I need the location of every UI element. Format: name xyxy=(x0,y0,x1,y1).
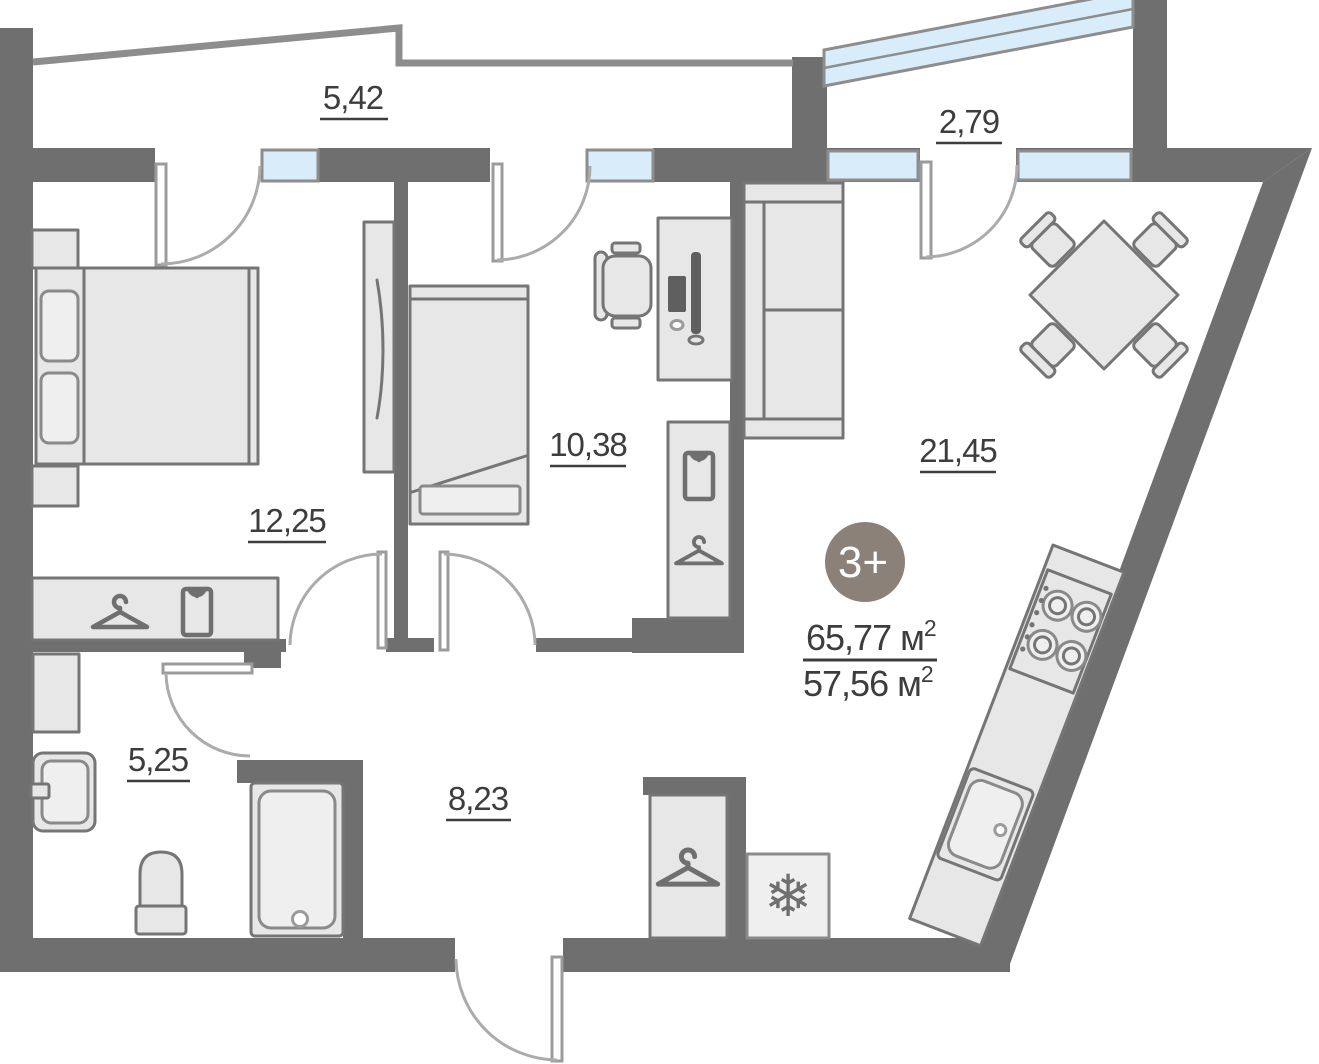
area-total-value: 65,77 xyxy=(806,617,891,658)
balcony-divider-column xyxy=(792,57,827,182)
hall-niche-top-wall xyxy=(643,777,746,795)
area-total: 65,77 м2 xyxy=(806,615,936,658)
wall-divider-foot xyxy=(386,638,434,652)
pillow-bottom xyxy=(41,373,78,443)
shower-tray-inner xyxy=(259,791,335,928)
shower xyxy=(251,783,343,936)
bedroom-tall-closet xyxy=(364,222,394,472)
toilet-tank xyxy=(136,906,186,934)
monitor xyxy=(691,252,701,334)
door-arc-bedroom xyxy=(290,554,382,645)
kidsroom-furniture xyxy=(410,218,732,618)
chair-armrest-bottom xyxy=(612,318,640,328)
sofa xyxy=(744,183,843,438)
door-leaf-entrance xyxy=(552,957,562,1061)
door-leaf-bathroom xyxy=(163,664,252,673)
rooms-badge-label: 3+ xyxy=(838,538,888,587)
basin-tap xyxy=(31,784,49,798)
label-bathroom: 5,25 xyxy=(128,741,188,778)
window-living-left xyxy=(828,151,918,180)
corridor-wall-block xyxy=(632,618,744,653)
bedroom-top-wall-c xyxy=(653,148,793,182)
bathroom-right-wall xyxy=(343,762,363,940)
glazing-band xyxy=(824,0,1133,86)
sofa-backrest xyxy=(744,202,764,419)
glazing-midline xyxy=(824,9,1133,68)
label-kidsroom: 10,38 xyxy=(549,426,627,463)
bedroom-wardrobe xyxy=(32,578,278,640)
sofa-armrest-bottom xyxy=(744,419,843,438)
window-living-right xyxy=(1018,151,1131,180)
door-arc-bedroom-balcony xyxy=(161,166,260,264)
door-arc-living-balcony xyxy=(926,165,1017,257)
door-leaf-kidsroom-balcony xyxy=(493,164,502,261)
area-total-unit: м xyxy=(891,617,924,658)
bathroom-furniture xyxy=(31,654,343,936)
door-arc-entrance xyxy=(456,959,557,1060)
outer-wall-bottom-right xyxy=(563,938,1010,972)
toilet xyxy=(136,852,186,934)
sofa-armrest-top xyxy=(744,183,843,202)
window-bedroom xyxy=(262,150,318,181)
label-bedroom: 12,25 xyxy=(248,502,326,539)
office-chair xyxy=(595,243,651,328)
wall-bedroom-kidsroom xyxy=(394,178,408,652)
snowflake-icon: ❄ xyxy=(764,862,813,930)
corridor-wall xyxy=(536,638,636,652)
toilet-bowl xyxy=(140,852,182,910)
floor-plan-canvas: ❄ 5,42 2,79 12,25 10,38 21,45 5,25 xyxy=(0,0,1319,1064)
outer-wall-bottom-left xyxy=(0,938,455,972)
label-hallway: 8,23 xyxy=(448,780,508,817)
pc-keyboard xyxy=(668,276,686,312)
label-living: 21,45 xyxy=(919,432,997,469)
pillow-top xyxy=(41,291,78,361)
label-balcony2: 2,79 xyxy=(939,103,999,140)
nightstand-top xyxy=(32,230,78,268)
door-leaf-living-balcony xyxy=(921,162,931,258)
area-living-value: 57,56 xyxy=(803,663,888,704)
bedroom-furniture xyxy=(32,222,394,640)
dining-set xyxy=(1019,211,1189,379)
apartment-info: 3+ 65,77 м2 57,56 м2 xyxy=(803,522,937,704)
nightstand-bottom xyxy=(32,466,78,506)
hall-niche-right-wall xyxy=(727,795,746,938)
bedroom-top-wall-a xyxy=(33,148,155,182)
washbasin xyxy=(31,753,95,831)
area-total-sup: 2 xyxy=(924,615,936,641)
outer-column-top-right xyxy=(1133,0,1167,148)
chair-armrest-top xyxy=(612,243,640,253)
door-leaf-kidsroom xyxy=(440,552,448,650)
shower-drain xyxy=(293,912,308,927)
area-living: 57,56 м2 xyxy=(803,661,933,704)
mouse xyxy=(671,321,683,330)
area-living-sup: 2 xyxy=(921,661,933,687)
bed-drawer xyxy=(420,486,520,514)
door-leaf-bedroom xyxy=(378,552,386,648)
balcony2-glazing xyxy=(824,0,1133,86)
floor-plan: ❄ 5,42 2,79 12,25 10,38 21,45 5,25 xyxy=(0,0,1319,1064)
outer-wall-left xyxy=(0,28,33,972)
door-leaf-bedroom-balcony xyxy=(156,164,166,265)
door-arc-kidsroom-balcony xyxy=(497,166,590,260)
area-living-unit: м xyxy=(888,663,921,704)
window-kidsroom xyxy=(587,150,653,181)
balcony1-parapet xyxy=(33,28,793,63)
bedroom-top-wall-b xyxy=(318,148,490,182)
chair-seat xyxy=(603,256,651,316)
label-balcony1: 5,42 xyxy=(323,79,383,116)
door-arc-kidsroom xyxy=(444,554,535,645)
bath-cabinet xyxy=(33,654,79,732)
